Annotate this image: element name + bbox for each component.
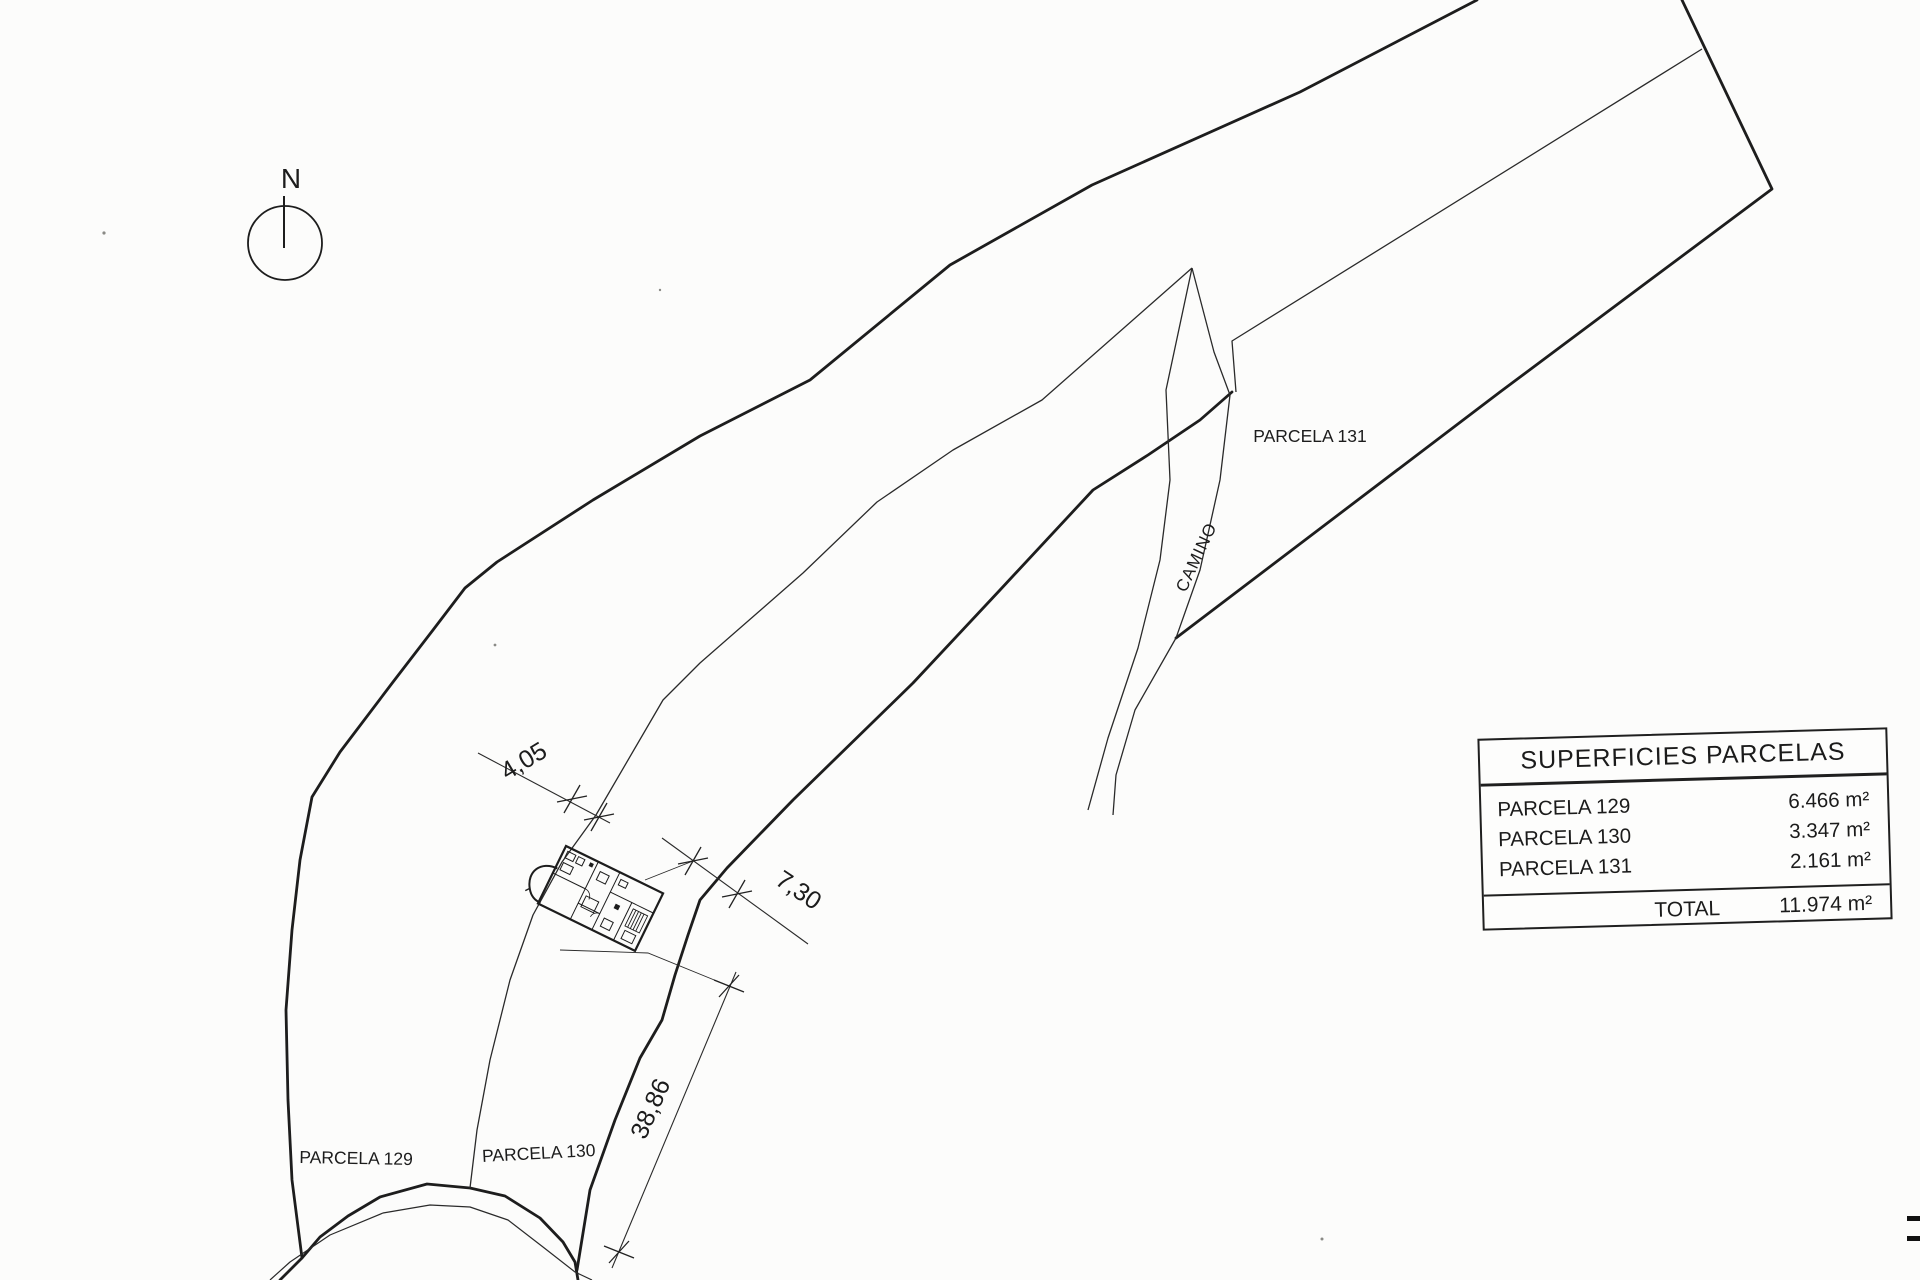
scan-specks [102, 231, 1323, 1240]
tick-mark-7-30-a [678, 847, 708, 875]
parcel-row-label: PARCELA 131 [1499, 852, 1633, 886]
camino-label: CAMINO [1172, 520, 1220, 595]
parcel-129-label: PARCELA 129 [299, 1147, 413, 1169]
scan-edge-dashes [1907, 1216, 1920, 1241]
parcel-130-east-boundary [577, 392, 1232, 1270]
building-footprint [521, 838, 663, 951]
north-label: N [281, 163, 301, 194]
extension-line-upper [645, 861, 693, 880]
bottom-path-inner-arc [270, 1205, 592, 1280]
table-body: PARCELA 129 6.466 m² PARCELA 130 3.347 m… [1481, 775, 1890, 887]
parcel-row-label: PARCELA 130 [1498, 822, 1632, 856]
parcel-row-label: PARCELA 129 [1497, 792, 1631, 826]
parcel-131-label: PARCELA 131 [1253, 426, 1367, 446]
outer-boundary-west [280, 0, 1477, 1280]
parcel-131-northwest-edge [1232, 49, 1702, 392]
extension-line-lower [560, 950, 729, 986]
parcel-131-northeast-boundary [1176, 0, 1772, 638]
parcel-row-value: 6.466 m² [1788, 785, 1870, 817]
stairs-hatch [625, 909, 648, 933]
dimension-label-7-30: 7,30 [770, 865, 826, 915]
bottom-boundary-arc [302, 1184, 578, 1280]
parcel-130-label: PARCELA 130 [481, 1140, 596, 1166]
parcel-row-value: 2.161 m² [1790, 845, 1872, 877]
total-value: 11.974 m² [1779, 892, 1873, 919]
parcel-areas-table: SUPERFICIES PARCELAS PARCELA 129 6.466 m… [1477, 727, 1892, 930]
dimension-label-4-05: 4,05 [496, 737, 552, 786]
north-indicator: N [248, 163, 322, 280]
site-plan-drawing: N PARCELA 129 PARCELA 130 PARCELA 131 CA… [0, 0, 1920, 1280]
parcel-row-value: 3.347 m² [1789, 815, 1871, 847]
scanned-site-plan-page: N PARCELA 129 PARCELA 130 PARCELA 131 CA… [0, 0, 1920, 1280]
parcel-divider-line [470, 268, 1192, 1188]
tick-mark-38-86-a [714, 975, 744, 997]
camino-left-edge [1088, 268, 1192, 810]
tick-mark-38-86-b [604, 1241, 634, 1263]
tick-mark-4-05-b [584, 803, 614, 831]
